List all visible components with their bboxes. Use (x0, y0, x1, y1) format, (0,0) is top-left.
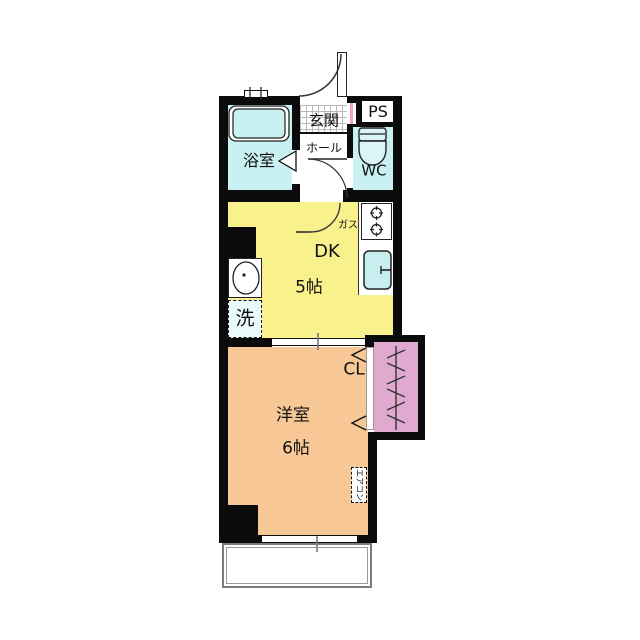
bathtub-icon (229, 106, 289, 141)
hanger-pipe-icon (387, 346, 405, 430)
kitchen-sink-icon (364, 251, 391, 289)
laundry-label: 洗 (235, 310, 254, 329)
hall-label: ホール (306, 142, 342, 154)
toilet-icon (359, 128, 386, 165)
dk-label: DK (314, 243, 340, 261)
stove-burners-icon (370, 206, 383, 237)
wc-door-arc (308, 159, 347, 198)
entrance-label: 玄関 (309, 114, 339, 129)
wc-label: WC (361, 164, 386, 179)
fixtures-overlay (0, 0, 640, 640)
aircon-label: エアコン (355, 469, 363, 501)
dk-door-arc (311, 203, 340, 232)
dk-size-label: 5帖 (295, 280, 323, 297)
washbasin-icon (233, 262, 259, 294)
western-room-label: 洋室 (276, 408, 310, 425)
western-room-size-label: 6帖 (282, 441, 310, 458)
closet-label: CL (343, 362, 364, 379)
bathroom-label: 浴室 (243, 153, 275, 169)
pipe-space-label: PS (368, 104, 388, 120)
floorplan-canvas: 玄関 PS ホール 浴室 WC ガス DK 5帖 洗 CL 洋室 6帖 エアコン (0, 0, 640, 640)
gas-label: ガス (338, 221, 358, 231)
closet-door-arrow-icon (352, 416, 366, 430)
entrance-door-arc (299, 54, 341, 96)
folding-door-arrow-icon (279, 151, 296, 171)
